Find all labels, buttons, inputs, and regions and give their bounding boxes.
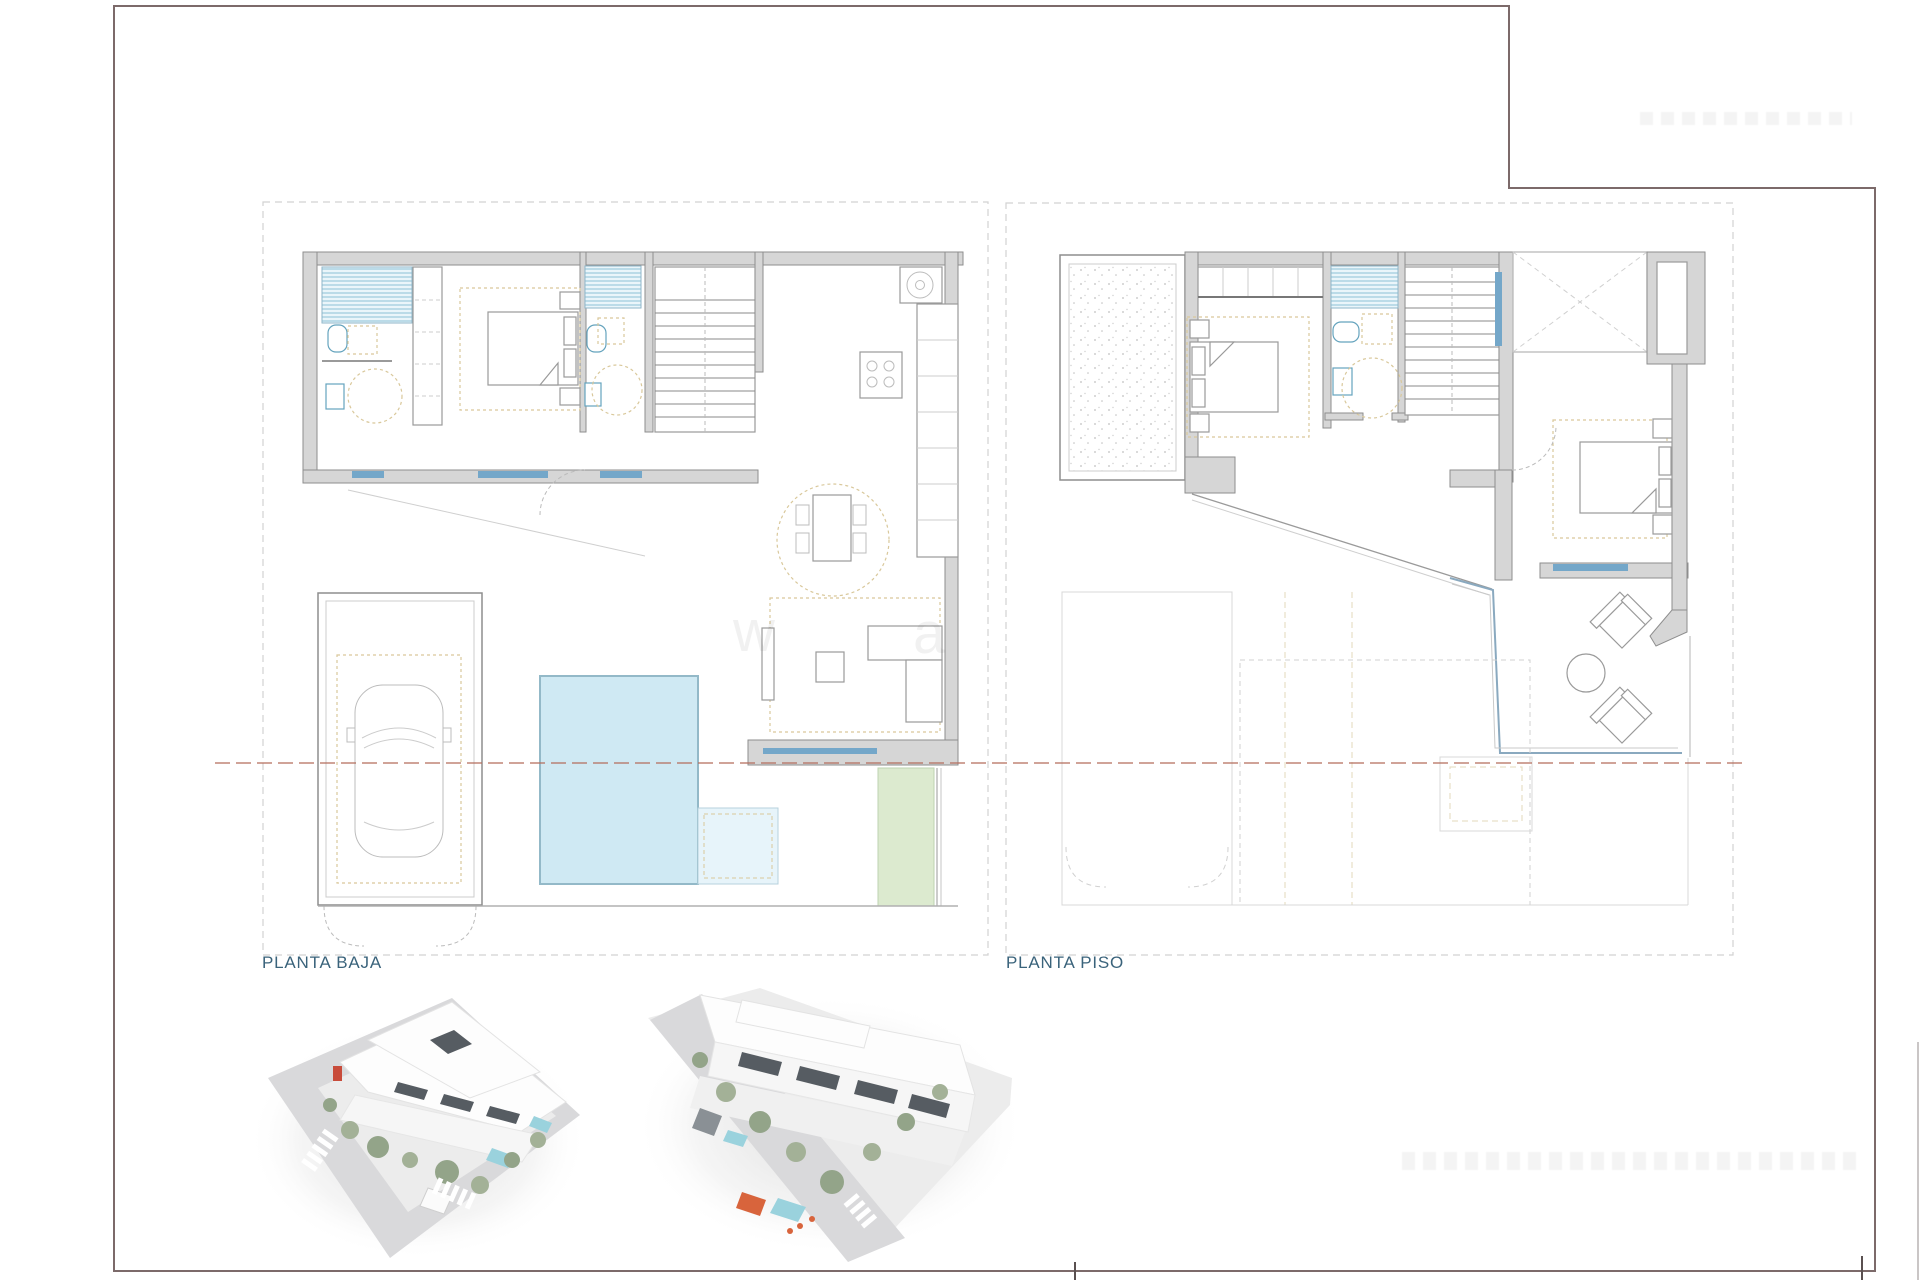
watermark-smudge [1640,112,1852,125]
staircase [655,267,755,432]
bedroom-2 [1187,267,1323,437]
watermark-smudge [1402,1152,1860,1170]
kitchen [860,267,958,557]
nightstand [1653,419,1672,438]
kitchen-counter [917,304,958,557]
terrace-table [1567,654,1605,692]
toilet-icon [587,325,606,352]
shower-hatch [322,267,412,323]
nightstand [560,292,580,309]
terrace-armchair [1590,589,1652,651]
roof-terrace [1450,578,1690,757]
shower-hatch [1331,266,1398,308]
void-x-room [1513,252,1705,364]
toilet-icon [328,325,347,352]
sofa [906,660,942,722]
parapet-diagonal [1192,494,1492,589]
floor-plan-planta-piso [1060,252,1705,905]
garage-door-swing [324,906,364,946]
plan-label-planta-baja: PLANTA BAJA [262,953,382,973]
nightstand [560,388,580,405]
kitchen-island [860,352,902,398]
bathroom-1 [322,267,412,423]
wardrobe [413,267,442,425]
shower-hatch [585,266,641,308]
staircase [1405,267,1502,415]
patio-diagonal [348,490,645,556]
terrace-armchair [1590,684,1652,746]
coffee-table [816,652,844,682]
nightstand [1653,515,1672,534]
plan-label-planta-piso: PLANTA PISO [1006,953,1124,973]
bathroom-3 [1331,266,1402,418]
solarium-terrace [1060,255,1185,480]
garage [318,593,482,946]
bedroom-1 [460,288,580,410]
red-door [333,1066,342,1081]
washbasin-icon [326,384,344,409]
nightstand [1190,320,1209,338]
door-swing [1512,426,1556,470]
double-bed [1580,442,1672,513]
toilet-icon [1333,322,1359,342]
wardrobe [1198,267,1323,297]
exterior-render-right [635,988,1025,1262]
bathroom-2 [585,266,642,415]
pool [540,676,778,884]
shaft [1657,262,1687,354]
watermark-letter: w [733,598,775,665]
lawn [878,768,934,906]
watermark-letter: a [913,600,945,667]
dining-table [813,495,851,561]
garage-door-swing [436,906,476,946]
car-icon [347,685,451,857]
architectural-sheet [0,0,1920,1280]
bedroom-3 [1553,419,1672,571]
exterior-render-left [248,998,588,1260]
dining-area [777,484,889,596]
nightstand [1190,414,1209,432]
floor-plan-planta-baja [303,252,963,946]
